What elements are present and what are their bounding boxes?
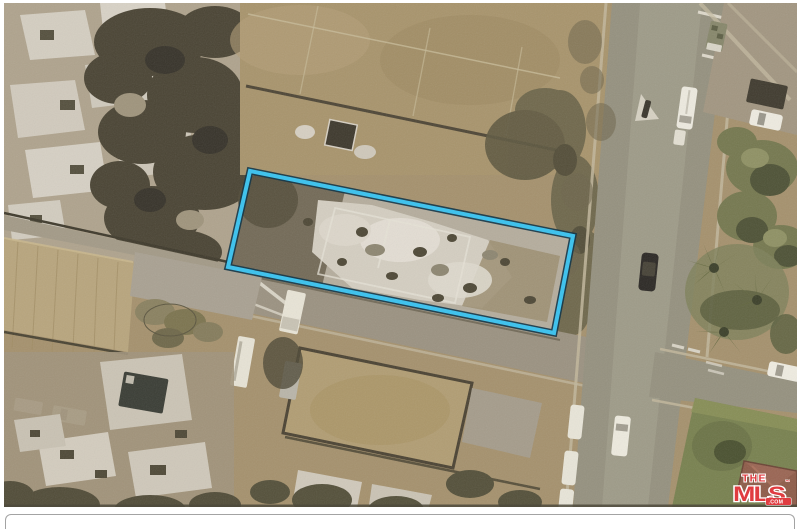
bottom-panel [5,514,795,529]
themls-logo: THE MLS ™ .COM [732,470,796,507]
logo-com: .COM [769,500,784,506]
aerial-scene [4,3,797,507]
photo-grain [4,3,797,507]
listing-aerial-photo[interactable]: THE MLS ™ .COM [4,3,797,507]
photo-bottom-edge [4,505,797,508]
logo-trademark: ™ [785,480,790,486]
